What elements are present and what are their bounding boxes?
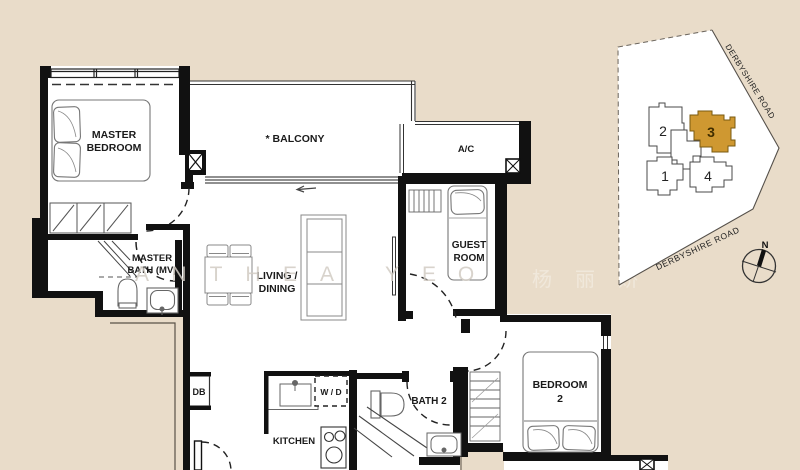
svg-text:T: T — [210, 263, 223, 286]
svg-text:2: 2 — [659, 123, 667, 139]
svg-text:N: N — [171, 263, 186, 286]
svg-text:2: 2 — [557, 393, 563, 405]
svg-text:杨: 杨 — [532, 268, 552, 291]
svg-text:DB: DB — [193, 387, 206, 397]
svg-text:A: A — [320, 263, 334, 286]
svg-text:BEDROOM: BEDROOM — [533, 379, 588, 391]
svg-text:BATH 2: BATH 2 — [411, 396, 447, 407]
svg-text:O: O — [458, 263, 474, 286]
svg-text:A/C: A/C — [458, 144, 475, 155]
svg-text:MASTER: MASTER — [92, 129, 137, 141]
svg-text:E: E — [422, 263, 436, 286]
svg-text:A: A — [135, 263, 149, 286]
svg-text:KITCHEN: KITCHEN — [273, 436, 315, 447]
svg-text:3: 3 — [707, 124, 715, 140]
svg-text:E: E — [283, 263, 297, 286]
svg-text:丽: 丽 — [575, 269, 595, 291]
svg-text:* BALCONY: * BALCONY — [266, 133, 325, 145]
svg-text:GUEST: GUEST — [452, 240, 486, 251]
svg-text:4: 4 — [704, 168, 712, 184]
svg-text:Y: Y — [385, 263, 399, 286]
svg-text:W / D: W / D — [320, 387, 341, 397]
svg-text:N: N — [762, 240, 769, 251]
svg-text:BEDROOM: BEDROOM — [87, 142, 142, 154]
svg-text:1: 1 — [661, 168, 669, 184]
svg-text:H: H — [245, 263, 260, 286]
